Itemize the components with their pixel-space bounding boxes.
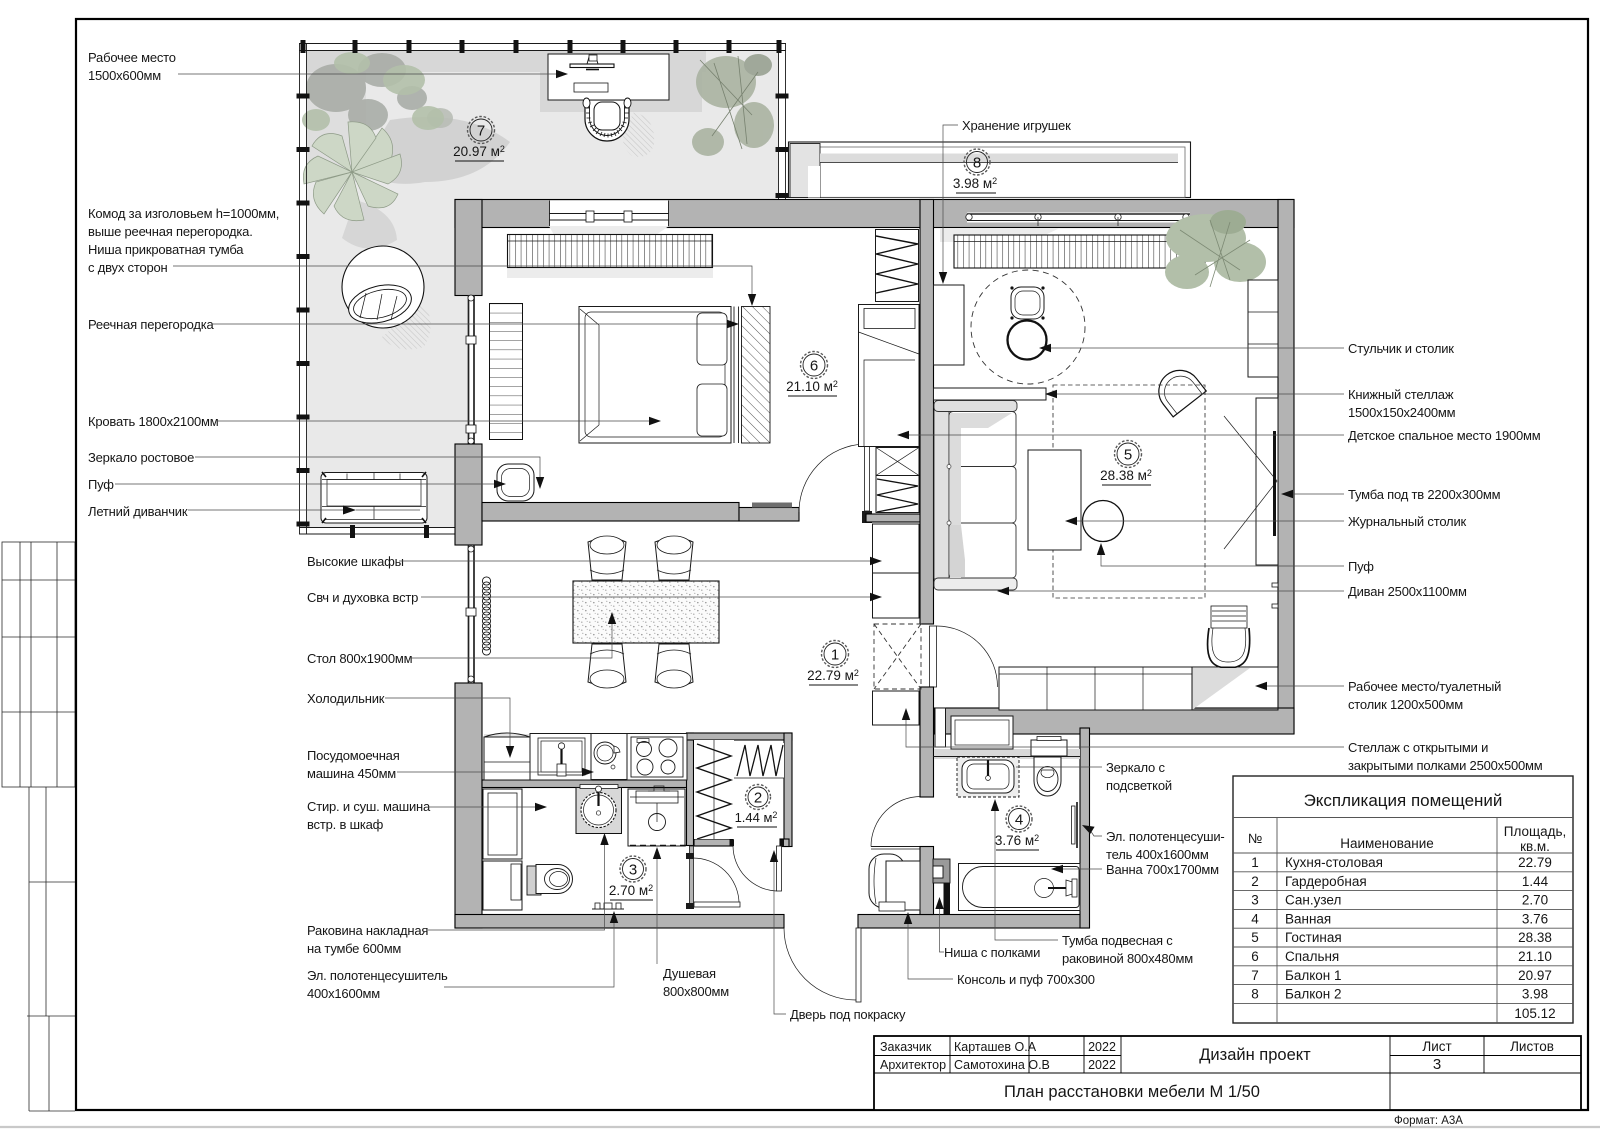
svg-text:раковиной 800х480мм: раковиной 800х480мм (1062, 951, 1193, 966)
svg-text:3: 3 (629, 862, 637, 879)
svg-text:Комод за изголовьем h=1000мм,: Комод за изголовьем h=1000мм, (88, 206, 279, 221)
svg-text:400х1600мм: 400х1600мм (307, 986, 380, 1001)
svg-text:на тумбе 600мм: на тумбе 600мм (307, 941, 401, 956)
svg-text:Реечная перегородка: Реечная перегородка (88, 317, 215, 332)
svg-text:21.10 м2: 21.10 м2 (786, 379, 838, 394)
svg-text:План расстановки мебели М 1/50: План расстановки мебели М 1/50 (1004, 1083, 1260, 1101)
svg-text:Холодильник: Холодильник (307, 691, 385, 706)
svg-text:машина 450мм: машина 450мм (307, 766, 396, 781)
svg-text:Душевая: Душевая (663, 966, 716, 981)
svg-text:Рабочее место/туалетный: Рабочее место/туалетный (1348, 679, 1501, 694)
svg-text:Сан.узел: Сан.узел (1285, 893, 1341, 908)
svg-text:Кухня-столовая: Кухня-столовая (1285, 855, 1383, 870)
svg-text:2.70: 2.70 (1522, 893, 1548, 908)
svg-text:Диван 2500х1100мм: Диван 2500х1100мм (1348, 584, 1467, 599)
svg-text:Гостиная: Гостиная (1285, 930, 1342, 945)
svg-text:20.97: 20.97 (1518, 968, 1552, 983)
svg-text:2: 2 (1251, 874, 1259, 889)
svg-text:Тумба под тв 2200х300мм: Тумба под тв 2200х300мм (1348, 487, 1501, 502)
svg-text:Экспликация помещений: Экспликация помещений (1304, 791, 1503, 810)
svg-text:Эл. полотенцесушитель: Эл. полотенцесушитель (307, 968, 448, 983)
svg-text:28.38 м2: 28.38 м2 (1100, 468, 1152, 483)
svg-text:№: № (1248, 831, 1262, 846)
svg-text:Гардеробная: Гардеробная (1285, 874, 1367, 889)
svg-text:Раковина накладная: Раковина накладная (307, 923, 428, 938)
svg-text:5: 5 (1124, 447, 1132, 464)
svg-text:закрытыми полками 2500х500мм: закрытыми полками 2500х500мм (1348, 758, 1543, 773)
svg-text:1500х600мм: 1500х600мм (88, 68, 161, 83)
svg-text:1.44 м2: 1.44 м2 (735, 810, 778, 825)
svg-text:Стеллаж с открытыми и: Стеллаж с открытыми и (1348, 740, 1488, 755)
svg-text:1500х150х2400мм: 1500х150х2400мм (1348, 405, 1456, 420)
svg-text:Пуф: Пуф (1348, 559, 1374, 574)
svg-text:2: 2 (754, 790, 762, 807)
svg-text:3: 3 (1251, 893, 1259, 908)
svg-text:столик 1200х500мм: столик 1200х500мм (1348, 697, 1463, 712)
svg-text:Летний диванчик: Летний диванчик (88, 504, 188, 519)
svg-text:Журнальный столик: Журнальный столик (1348, 514, 1467, 529)
svg-text:Высокие шкафы: Высокие шкафы (307, 554, 404, 569)
svg-text:Ванна 700х1700мм: Ванна 700х1700мм (1106, 862, 1219, 877)
svg-text:6: 6 (810, 358, 818, 375)
svg-text:Балкон 1: Балкон 1 (1285, 968, 1342, 983)
svg-text:Карташев О.А: Карташев О.А (954, 1040, 1037, 1054)
svg-text:подсветкой: подсветкой (1106, 778, 1172, 793)
svg-text:Листов: Листов (1510, 1039, 1554, 1054)
svg-text:3.98 м2: 3.98 м2 (953, 176, 997, 191)
svg-text:8: 8 (973, 155, 981, 172)
svg-text:5: 5 (1251, 930, 1259, 945)
svg-text:Формат: А3А: Формат: А3А (1394, 1115, 1463, 1127)
svg-text:2022: 2022 (1088, 1040, 1116, 1054)
svg-text:800х800мм: 800х800мм (663, 984, 729, 999)
svg-text:Рабочее место: Рабочее место (88, 50, 176, 65)
svg-text:1: 1 (831, 647, 839, 664)
svg-text:105.12: 105.12 (1514, 1006, 1555, 1021)
svg-text:7: 7 (477, 123, 485, 140)
svg-text:Ванная: Ванная (1285, 911, 1331, 926)
svg-text:Зеркало ростовое: Зеркало ростовое (88, 450, 194, 465)
svg-text:Дверь под покраску: Дверь под покраску (790, 1007, 906, 1022)
svg-text:3.98: 3.98 (1522, 987, 1548, 1002)
svg-text:встр. в шкаф: встр. в шкаф (307, 817, 384, 832)
svg-text:Дизайн проект: Дизайн проект (1199, 1046, 1311, 1064)
svg-text:Тумба подвесная с: Тумба подвесная с (1062, 933, 1173, 948)
svg-text:3: 3 (1433, 1056, 1441, 1073)
svg-text:2022: 2022 (1088, 1058, 1116, 1072)
svg-text:4: 4 (1251, 911, 1259, 926)
svg-text:6: 6 (1251, 949, 1259, 964)
svg-text:28.38: 28.38 (1518, 930, 1552, 945)
svg-text:Ниша с полками: Ниша с полками (944, 945, 1040, 960)
svg-text:Площадь,: Площадь, (1504, 824, 1567, 839)
svg-text:кв.м.: кв.м. (1520, 839, 1550, 854)
svg-text:Архитектор: Архитектор (880, 1058, 946, 1072)
svg-text:3.76 м2: 3.76 м2 (995, 833, 1039, 848)
svg-text:Балкон 2: Балкон 2 (1285, 987, 1342, 1002)
svg-text:Самотохина О.В: Самотохина О.В (954, 1058, 1050, 1072)
svg-text:с двух сторон: с двух сторон (88, 260, 168, 275)
svg-text:4: 4 (1015, 812, 1023, 829)
svg-text:1: 1 (1251, 855, 1259, 870)
svg-text:22.79: 22.79 (1518, 855, 1552, 870)
svg-text:Книжный стеллаж: Книжный стеллаж (1348, 387, 1454, 402)
svg-text:Детское спальное место 1900мм: Детское спальное место 1900мм (1348, 428, 1541, 443)
svg-text:22.79 м2: 22.79 м2 (807, 668, 859, 683)
svg-text:20.97 м2: 20.97 м2 (453, 144, 505, 159)
svg-text:2.70 м2: 2.70 м2 (609, 883, 653, 898)
svg-text:Зеркало с: Зеркало с (1106, 760, 1165, 775)
svg-text:7: 7 (1251, 968, 1259, 983)
svg-text:Лист: Лист (1422, 1039, 1451, 1054)
svg-text:8: 8 (1251, 987, 1259, 1002)
svg-text:Свч и духовка встр: Свч и духовка встр (307, 590, 418, 605)
svg-text:Заказчик: Заказчик (880, 1040, 932, 1054)
svg-text:Наименование: Наименование (1340, 836, 1434, 851)
svg-text:Ниша прикроватная тумба: Ниша прикроватная тумба (88, 242, 244, 257)
svg-text:3.76: 3.76 (1522, 911, 1548, 926)
svg-text:Посудомоечная: Посудомоечная (307, 748, 400, 763)
svg-text:Стол 800х1900мм: Стол 800х1900мм (307, 651, 413, 666)
svg-text:Пуф: Пуф (88, 477, 114, 492)
svg-text:Консоль и пуф 700х300: Консоль и пуф 700х300 (957, 972, 1095, 987)
svg-text:Стир. и суш. машина: Стир. и суш. машина (307, 799, 431, 814)
svg-text:Эл. полотенцесуши-: Эл. полотенцесуши- (1106, 829, 1225, 844)
svg-text:Кровать 1800х2100мм: Кровать 1800х2100мм (88, 414, 219, 429)
svg-text:Спальня: Спальня (1285, 949, 1339, 964)
svg-text:Хранение игрушек: Хранение игрушек (962, 118, 1071, 133)
svg-text:21.10: 21.10 (1518, 949, 1552, 964)
svg-text:тель 400х1600мм: тель 400х1600мм (1106, 847, 1209, 862)
svg-text:1.44: 1.44 (1522, 874, 1549, 889)
svg-text:выше реечная перегородка.: выше реечная перегородка. (88, 224, 253, 239)
svg-text:Стульчик и столик: Стульчик и столик (1348, 341, 1454, 356)
